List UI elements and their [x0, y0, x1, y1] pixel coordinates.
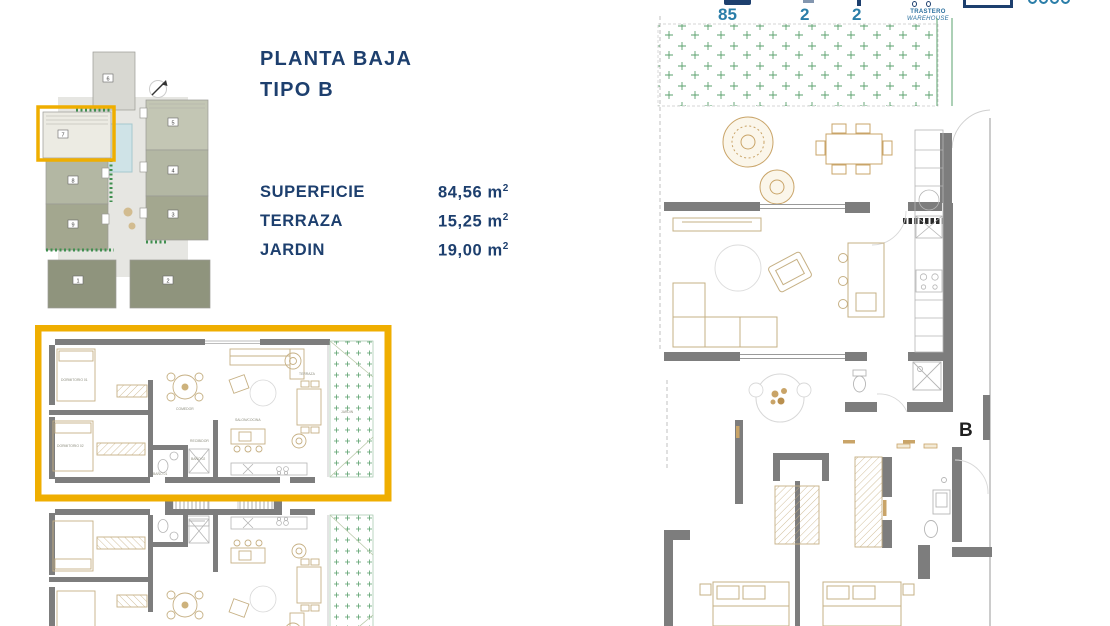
terrace: [723, 117, 892, 204]
coins-icon: [1039, 0, 1048, 4]
living-room: [673, 218, 812, 347]
svg-text:RECIBIDOR: RECIBIDOR: [190, 439, 209, 443]
table-row: TERRAZA 15,25 m2: [260, 207, 530, 236]
svg-text:3: 3: [171, 212, 174, 218]
wardrobe: [775, 486, 819, 544]
unit-letter-label: B: [959, 420, 973, 441]
table-row: JARDIN 19,00 m2: [260, 236, 530, 265]
door-arc: [877, 394, 907, 412]
svg-text:2: 2: [166, 278, 169, 284]
windows: [740, 205, 845, 359]
apartment-unit-geometry: [49, 339, 373, 483]
svg-text:SALON/COCINA: SALON/COCINA: [235, 418, 261, 422]
svg-text:5: 5: [171, 120, 174, 126]
bed: [823, 582, 914, 626]
bathroom-1: [853, 362, 941, 392]
plaza-tree: [129, 223, 136, 230]
title-line2: TIPO B: [260, 75, 412, 106]
page: PLANTA BAJA TIPO B SUPERFICIE 84,56 m2 T…: [0, 0, 1110, 626]
garden-hatch: [658, 24, 938, 106]
svg-text:JARDIN: JARDIN: [341, 410, 354, 414]
svg-text:BAÑO 02: BAÑO 02: [191, 456, 205, 461]
spec-value: 15,25 m2: [438, 212, 509, 232]
page-title: PLANTA BAJA TIPO B: [260, 44, 412, 106]
bathroom-2: [897, 444, 950, 538]
surface-table: SUPERFICIE 84,56 m2 TERRAZA 15,25 m2 JAR…: [260, 178, 530, 265]
door-arc: [872, 211, 906, 245]
apartment-unit-mirrored: [49, 509, 373, 626]
bed: [700, 582, 789, 626]
svg-text:8: 8: [71, 178, 74, 184]
coins-icon: [1050, 0, 1059, 4]
table-row: SUPERFICIE 84,56 m2: [260, 178, 530, 207]
spec-value: 19,00 m2: [438, 241, 509, 261]
svg-text:9: 9: [71, 222, 74, 228]
patio-table: [749, 374, 811, 422]
detailed-floor-plan: B: [650, 0, 1018, 626]
svg-text:DORMITORIO 02: DORMITORIO 02: [57, 444, 84, 448]
garden-edge-lines: [937, 18, 952, 106]
svg-text:TERRAZA: TERRAZA: [299, 372, 316, 376]
overview-floor-plan: DORMITORIO 01 DORMITORIO 02 BAÑO 01 RECI…: [35, 325, 545, 626]
kitchen-island: [839, 243, 885, 317]
svg-text:DORMITORIO 01: DORMITORIO 01: [61, 378, 88, 382]
compass-icon: [150, 80, 168, 98]
wardrobe: [855, 457, 882, 547]
svg-text:1: 1: [76, 278, 79, 284]
coins-icon: [1061, 0, 1070, 4]
spec-value: 84,56 m2: [438, 183, 509, 203]
plaza-tree: [124, 208, 133, 217]
spec-label: SUPERFICIE: [260, 183, 438, 202]
svg-text:7: 7: [61, 132, 64, 138]
site-plan: 6 7 8 9 5 4 3 1 2: [18, 42, 233, 322]
svg-text:COMEDOR: COMEDOR: [176, 407, 194, 411]
spec-label: TERRAZA: [260, 212, 438, 231]
title-line1: PLANTA BAJA: [260, 44, 412, 75]
svg-text:6: 6: [106, 76, 109, 82]
room-labels: DORMITORIO 01 DORMITORIO 02 BAÑO 01 RECI…: [57, 372, 354, 476]
coins-icon: [1028, 0, 1037, 4]
svg-text:4: 4: [171, 168, 174, 174]
rug: [715, 245, 761, 291]
entry-door-arc: [952, 110, 990, 148]
spec-label: JARDIN: [260, 241, 438, 260]
kitchen-counter: [915, 130, 943, 352]
svg-text:BAÑO 01: BAÑO 01: [153, 471, 167, 476]
